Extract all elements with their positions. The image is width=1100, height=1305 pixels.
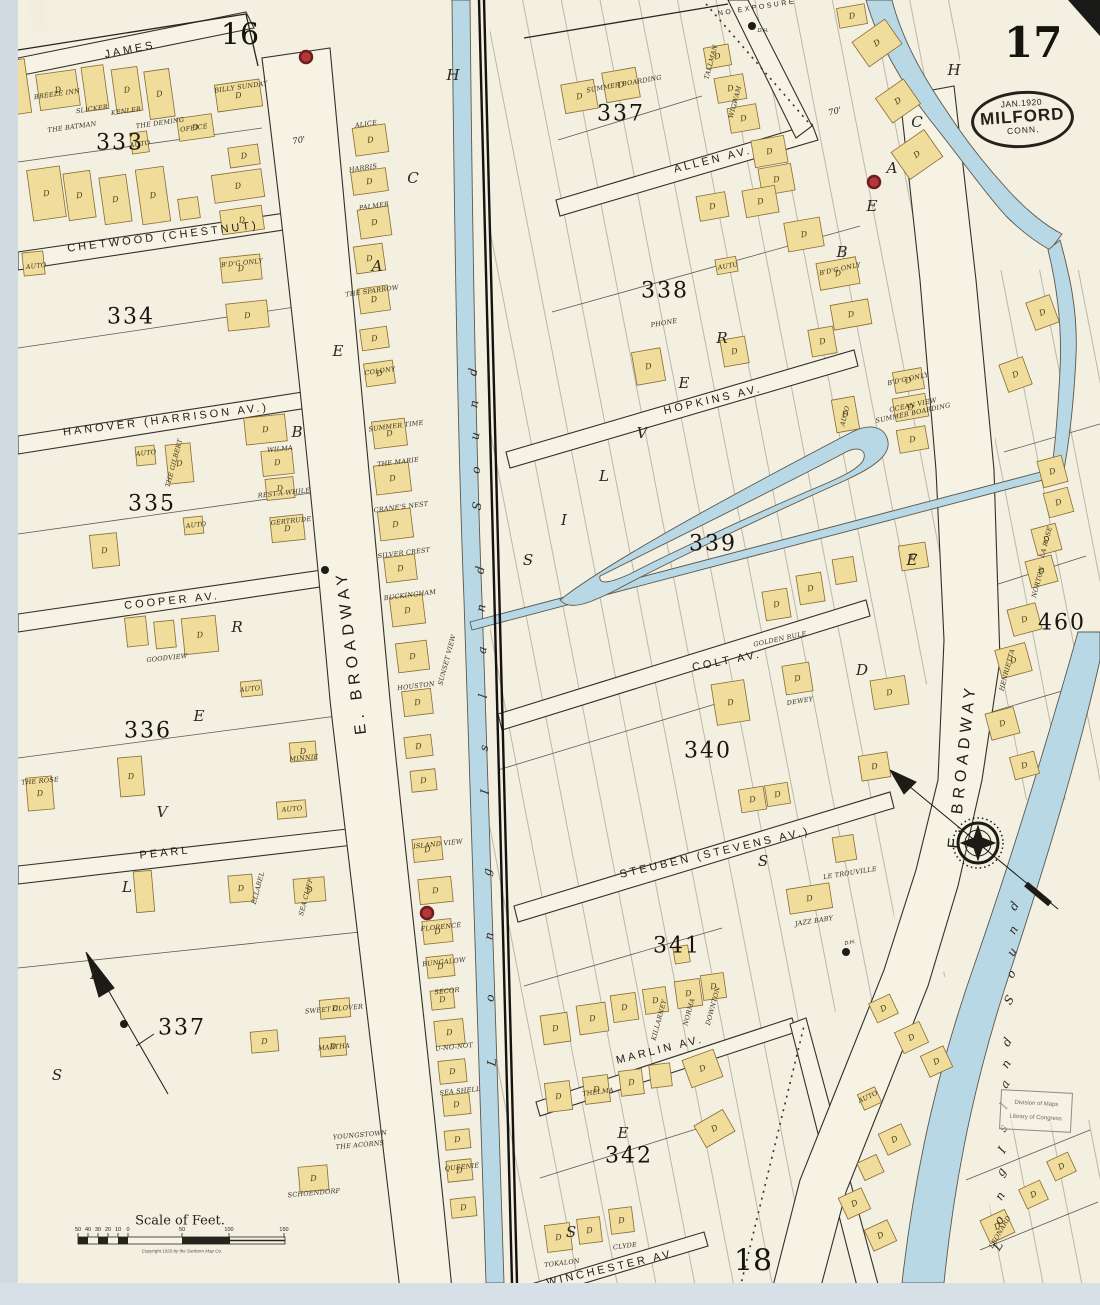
hydrant-black-dot (842, 948, 850, 956)
building-dwelling-marker: D (328, 1042, 337, 1052)
building (183, 516, 204, 535)
building (673, 945, 690, 964)
building (832, 557, 857, 585)
building (130, 131, 150, 154)
building (178, 197, 201, 221)
building-dwelling-marker: D (126, 772, 135, 782)
map-canvas: DDDDDDDDDDDDDDDDDDDDDDDDDDDDDDDDDDDDDDDD… (0, 0, 1100, 1305)
building (276, 800, 306, 819)
scale-title: Scale of Feet. (135, 1214, 225, 1229)
sanborn-map-sheet: DDDDDDDDDDDDDDDDDDDDDDDDDDDDDDDDDDDDDDDD… (0, 0, 1100, 1305)
sheet-number: 17 (1004, 18, 1062, 67)
building (22, 251, 45, 276)
building-dwelling-marker: D (35, 789, 44, 799)
building-dwelling-marker: D (236, 884, 245, 894)
building-dwelling-marker: D (305, 885, 314, 895)
building (240, 680, 262, 697)
building (715, 256, 738, 274)
building (832, 835, 857, 863)
hydrant-red-circle (868, 176, 880, 188)
library-stamp: Division of Maps Library of Congress (999, 1089, 1073, 1133)
copyright-line: Copyright 1920 by the Sanborn Map Co. (142, 1249, 223, 1254)
building (133, 870, 155, 912)
building-dwelling-marker: D (298, 747, 307, 757)
building-dwelling-marker: D (309, 1174, 318, 1184)
building (649, 1063, 673, 1088)
hydrant-black-dot (748, 22, 756, 30)
building (125, 616, 149, 647)
hydrant-black-dot (321, 566, 329, 574)
scan-edge-left (0, 0, 18, 1305)
stamp-line1: Division of Maps (1001, 1099, 1071, 1109)
hydrant-red-circle (300, 51, 312, 63)
scan-edge-bottom (0, 1283, 1100, 1305)
building (135, 445, 156, 466)
stamp-line2: Library of Congress (1001, 1113, 1071, 1123)
building-dwelling-marker: D (330, 1004, 339, 1014)
building-dwelling-marker: D (260, 1037, 269, 1047)
hydrant-red-circle (421, 907, 433, 919)
building (154, 620, 177, 649)
